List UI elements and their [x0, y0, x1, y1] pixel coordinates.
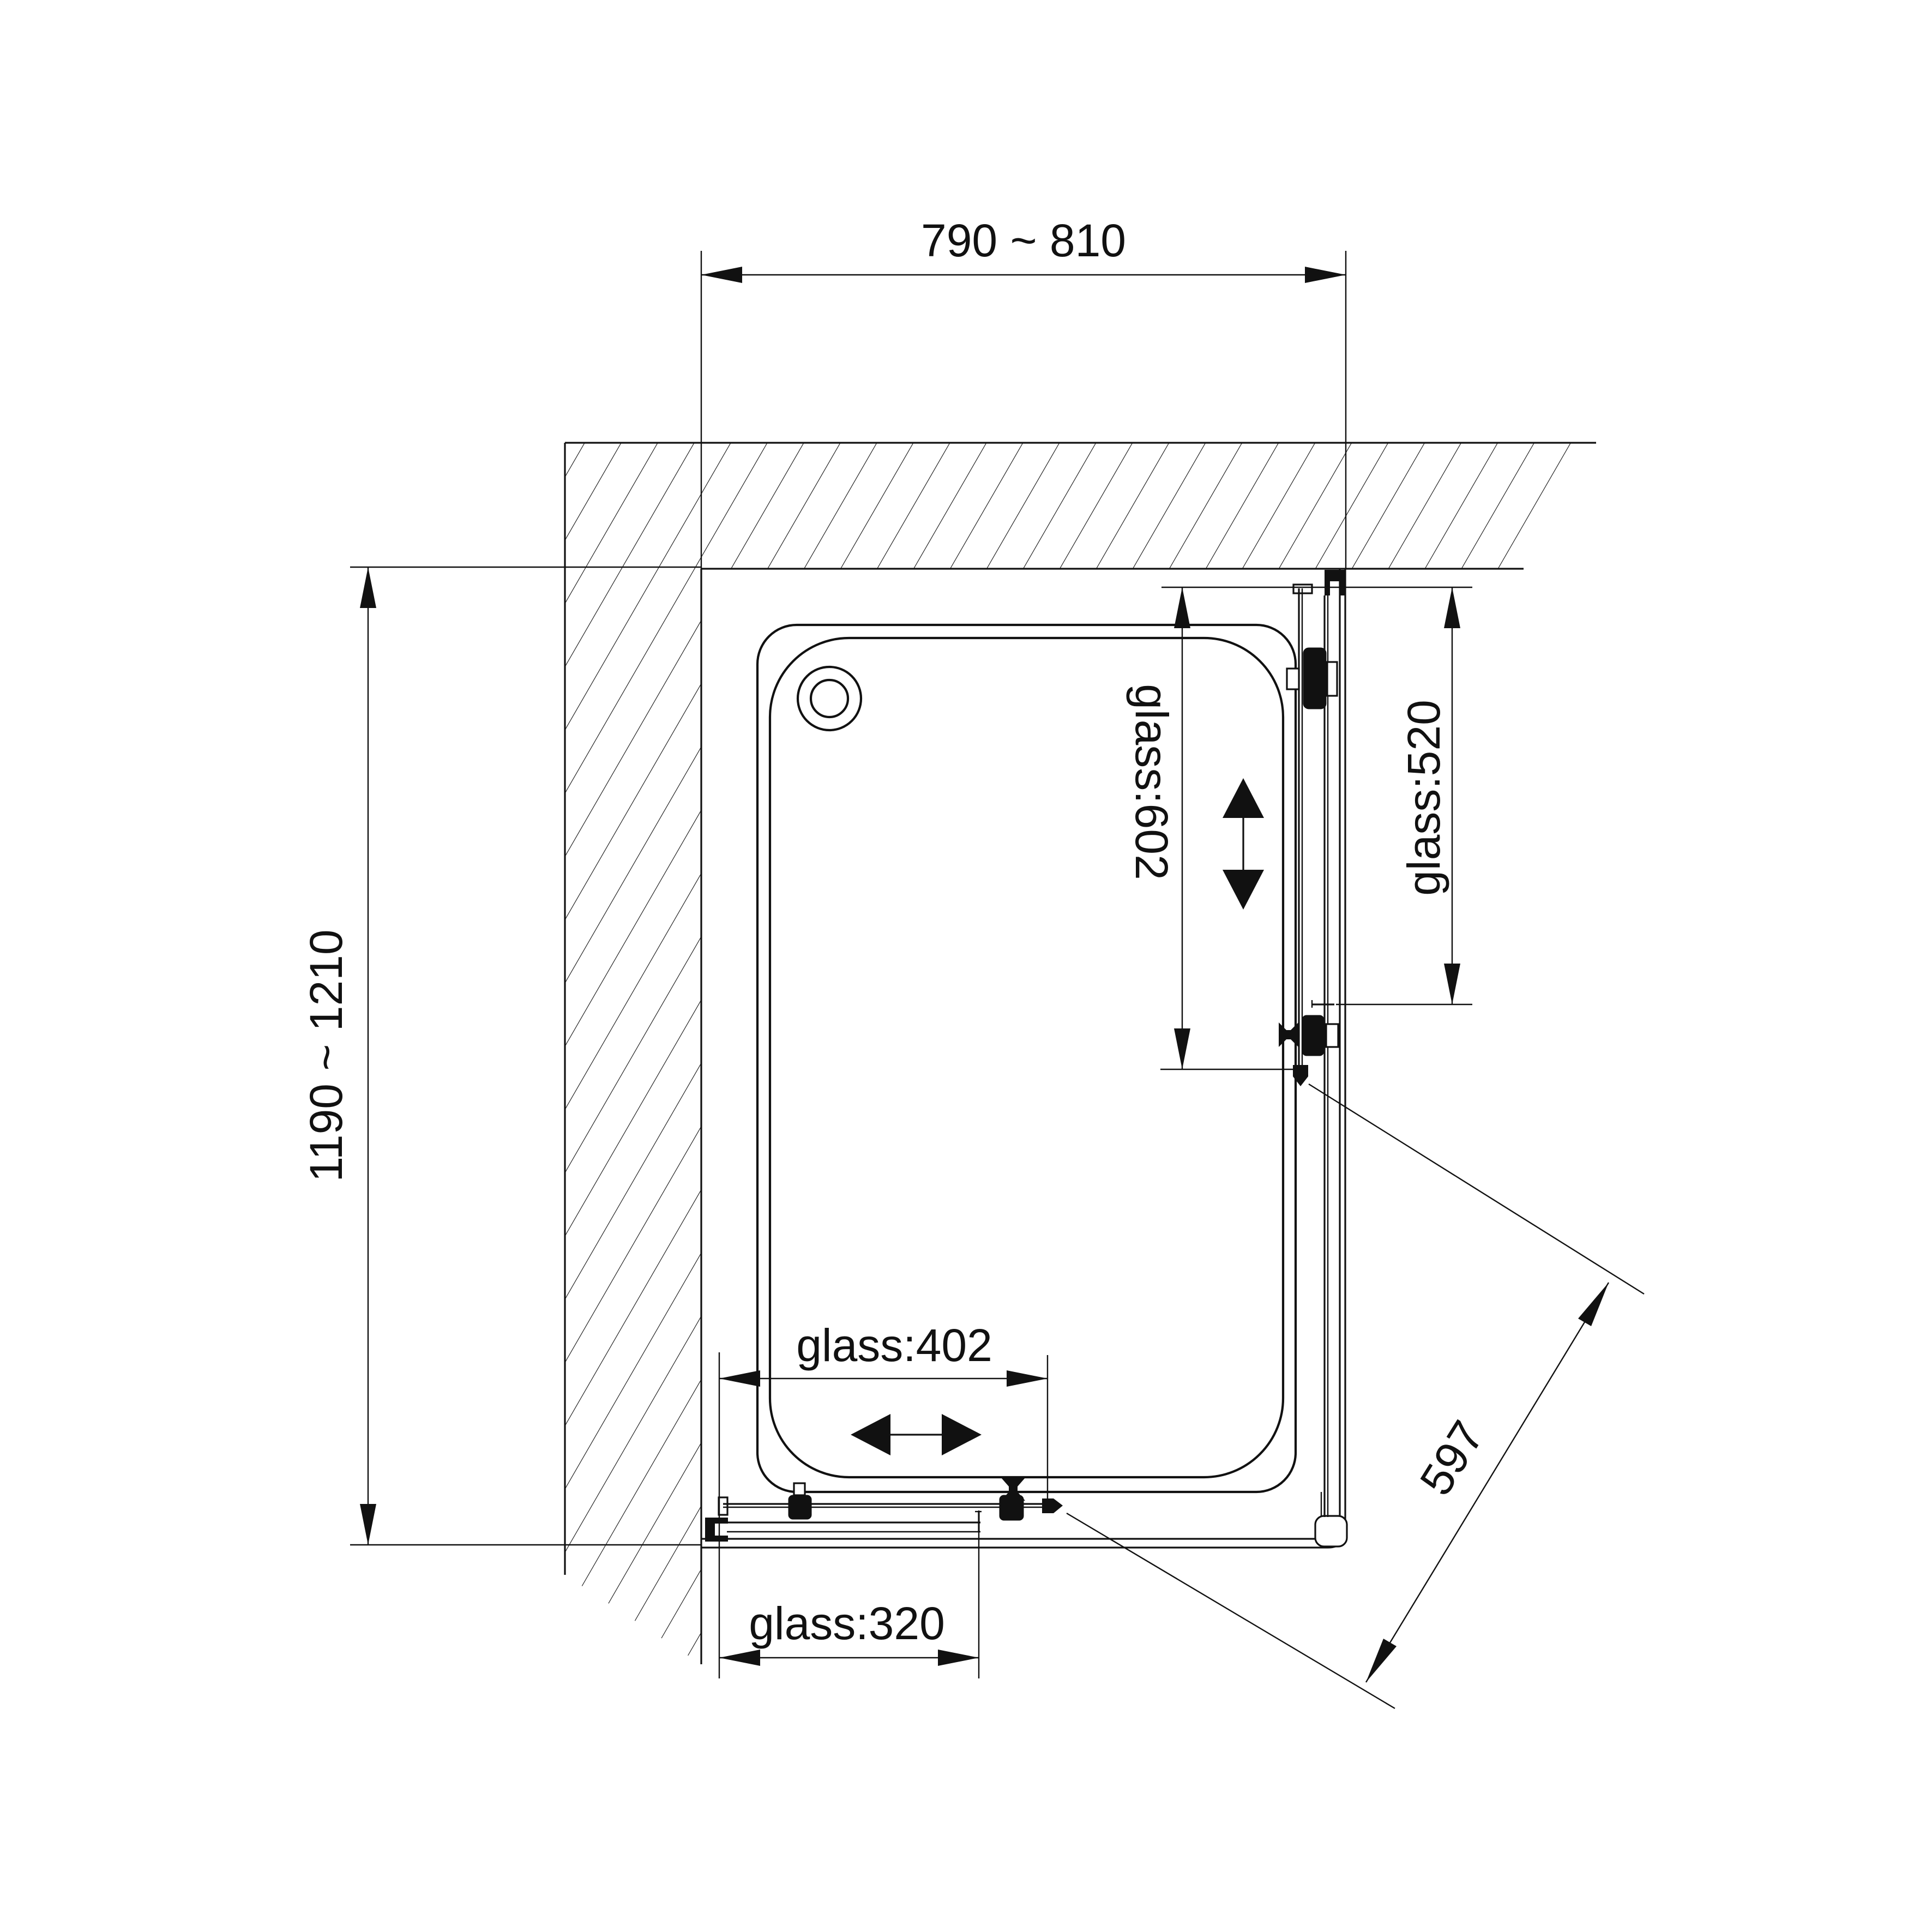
left-depth-label: 1190 ~ 1210	[300, 929, 352, 1182]
frame-right-inner	[701, 569, 1340, 1539]
right-door-lower-roller-bracket	[1326, 1024, 1338, 1047]
dimension-diagonal-opening: 597	[1067, 1084, 1644, 1708]
right-door-upper-roller-tab	[1327, 662, 1337, 696]
bottom-fixed-glass-label: glass:320	[749, 1598, 945, 1649]
bottom-door-spool-knob	[1001, 1478, 1025, 1501]
arrowhead-bottom	[360, 1504, 376, 1545]
arrowhead-top	[360, 567, 376, 608]
arrowhead-left	[701, 267, 742, 283]
arrowhead-bottom	[1174, 1028, 1190, 1069]
frame-corner-block	[1315, 1516, 1347, 1546]
right-door-lower-spool-knob	[1279, 1022, 1298, 1047]
arrowhead-right	[938, 1650, 979, 1666]
right-door-upper-roller	[1303, 648, 1326, 709]
bottom-door-slide-direction-arrow	[851, 1414, 982, 1455]
arrowhead-right	[1305, 267, 1346, 283]
shower-enclosure-plan-drawing: 790 ~ 810 1190 ~ 1210 glass:602 glass:52…	[0, 0, 1932, 1932]
drain-inner-circle	[811, 680, 848, 717]
right-door-wall-bracket	[1325, 570, 1346, 595]
bottom-door-left-roller	[789, 1495, 811, 1519]
arrowhead-right	[1007, 1370, 1048, 1387]
arrowhead-top	[1174, 587, 1190, 628]
bottom-door-handle	[1042, 1498, 1063, 1513]
bottom-door-left-roller-nut	[794, 1483, 805, 1495]
dimension-right-fixed-glass: glass:520	[1336, 587, 1472, 1004]
right-fixed-glass-label: glass:520	[1398, 700, 1449, 896]
arrowhead-left	[719, 1650, 760, 1666]
dimension-bottom-fixed-glass: glass:320	[719, 1510, 979, 1678]
right-door-upper-roller-nut	[1287, 669, 1299, 689]
diagonal-label: 597	[1410, 1412, 1494, 1504]
bottom-sliding-glass-left-cap	[719, 1497, 727, 1515]
dim-line	[1366, 1283, 1609, 1682]
frame-right-outer	[701, 569, 1345, 1548]
top-width-label: 790 ~ 810	[921, 215, 1126, 266]
bottom-door-wall-bracket	[705, 1518, 728, 1542]
enclosure-frame	[701, 569, 1347, 1548]
technical-drawing-page: 790 ~ 810 1190 ~ 1210 glass:602 glass:52…	[0, 0, 1932, 1932]
right-door-lower-roller	[1302, 1015, 1324, 1056]
arrowhead-lower	[1366, 1639, 1397, 1682]
drain-outer-circle	[798, 667, 861, 730]
bottom-sliding-glass-label: glass:402	[796, 1320, 992, 1371]
right-sliding-glass-label: glass:602	[1126, 684, 1177, 880]
right-door-slide-direction-arrow	[1223, 778, 1264, 910]
arrowhead-top	[1444, 587, 1460, 628]
arrowhead-bottom	[1444, 964, 1460, 1004]
arrowhead-upper	[1578, 1283, 1609, 1326]
arrowhead-left	[719, 1370, 760, 1387]
ext-line-upper	[1309, 1084, 1644, 1294]
